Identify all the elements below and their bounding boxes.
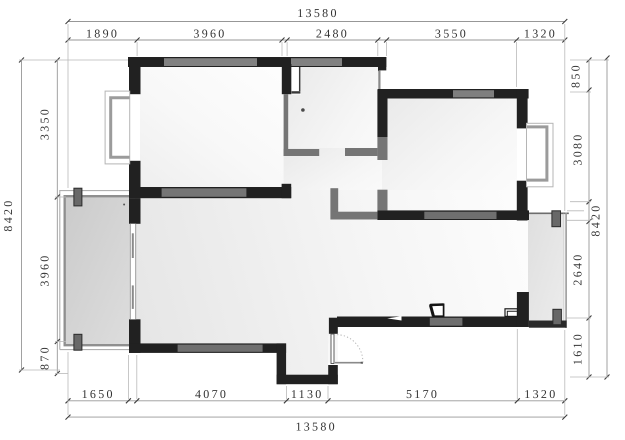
svg-text:1610: 1610 (571, 332, 585, 365)
svg-text:2640: 2640 (571, 252, 585, 285)
svg-text:3960: 3960 (38, 253, 52, 286)
svg-text:850: 850 (569, 63, 583, 88)
svg-text:3080: 3080 (571, 132, 585, 165)
svg-text:8420: 8420 (1, 198, 15, 231)
svg-text:13580: 13580 (297, 6, 339, 20)
svg-text:2480: 2480 (316, 26, 349, 40)
svg-text:4070: 4070 (195, 387, 228, 401)
svg-text:1320: 1320 (524, 26, 557, 40)
svg-text:1130: 1130 (291, 387, 324, 401)
svg-text:3960: 3960 (193, 26, 226, 40)
svg-text:870: 870 (38, 345, 52, 370)
svg-text:5170: 5170 (406, 387, 439, 401)
svg-text:3550: 3550 (435, 26, 468, 40)
svg-text:1890: 1890 (86, 26, 119, 40)
svg-text:1320: 1320 (524, 387, 557, 401)
svg-text:1650: 1650 (82, 387, 115, 401)
svg-text:13580: 13580 (295, 420, 337, 434)
svg-text:3350: 3350 (38, 107, 52, 140)
